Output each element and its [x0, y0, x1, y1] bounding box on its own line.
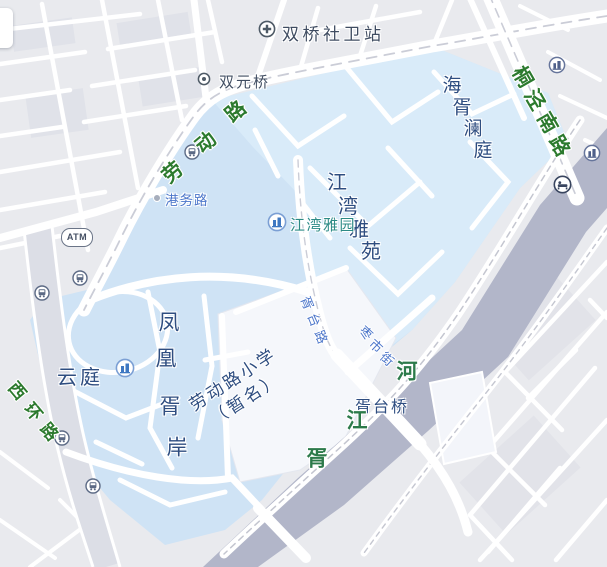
road-point-icon — [153, 194, 161, 202]
poi-label-yunting[interactable]: 云庭 — [57, 361, 103, 390]
atm-icon[interactable]: ATM — [61, 228, 93, 247]
poi-label-shuangyuan-bridge[interactable]: 双元桥 — [219, 71, 270, 92]
road-label-gangwu: 港务路 — [165, 189, 209, 209]
poi-label-clinic[interactable]: 双桥社卫站 — [282, 20, 385, 45]
map-viewport[interactable]: ATM 双桥社卫站 双元桥 海 胥 澜 庭 江 湾 雅 苑 凤 凰 胥 岸 云庭… — [0, 0, 607, 567]
partial-info-card[interactable] — [0, 8, 13, 48]
poi-label-jiangwan-garden[interactable]: 江湾雅园 — [290, 214, 356, 235]
